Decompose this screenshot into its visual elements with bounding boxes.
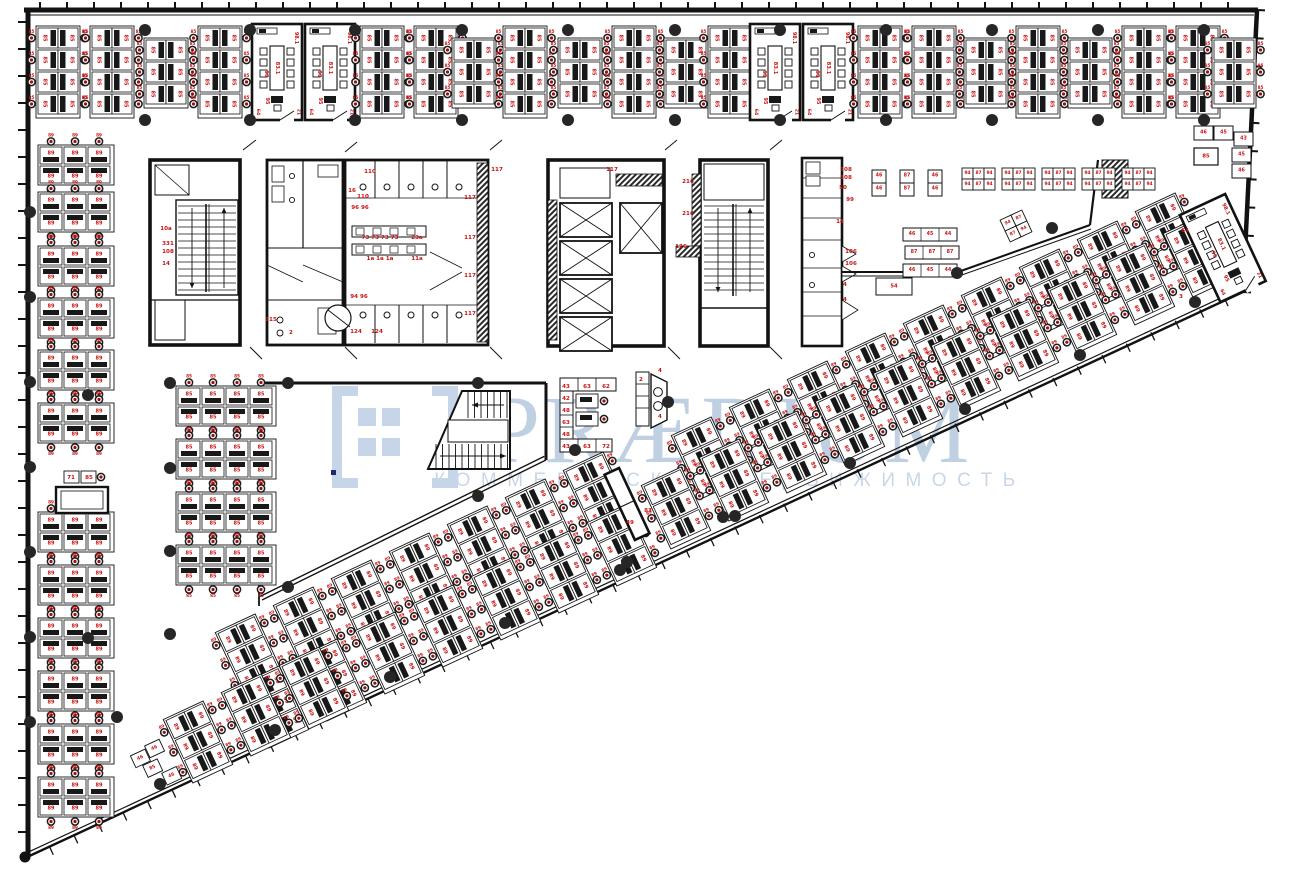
- svg-text:85: 85: [645, 101, 651, 108]
- svg-text:89: 89: [96, 379, 103, 385]
- column-dot: [164, 545, 176, 557]
- svg-text:89: 89: [72, 180, 78, 185]
- svg-text:85: 85: [85, 475, 93, 481]
- svg-text:85: 85: [591, 47, 597, 54]
- svg-text:85: 85: [96, 35, 102, 42]
- svg-text:85: 85: [1182, 35, 1188, 42]
- svg-text:85: 85: [1049, 101, 1055, 108]
- svg-text:64: 64: [308, 109, 314, 115]
- column-dot: [282, 377, 294, 389]
- svg-text:46: 46: [1238, 168, 1245, 174]
- svg-text:89: 89: [48, 606, 54, 611]
- svg-text:85: 85: [957, 85, 963, 90]
- svg-text:85: 85: [957, 63, 963, 68]
- svg-text:85: 85: [1128, 79, 1134, 86]
- svg-text:85: 85: [244, 95, 250, 100]
- svg-text:94: 94: [1106, 170, 1112, 176]
- svg-text:95: 95: [815, 98, 821, 105]
- svg-text:89: 89: [48, 133, 54, 138]
- column-dot: [1198, 114, 1210, 126]
- column-dot: [1074, 349, 1086, 361]
- svg-text:85: 85: [1155, 35, 1161, 42]
- column-dot: [880, 114, 892, 126]
- svg-text:89: 89: [48, 594, 55, 600]
- column-dot: [1092, 24, 1104, 36]
- svg-text:85: 85: [186, 445, 193, 451]
- desk-cluster: 858585858585858585858585: [956, 38, 1016, 108]
- svg-text:85: 85: [42, 35, 48, 42]
- desk-cluster: 85858585858585858585858585858585: [850, 26, 910, 118]
- svg-text:85: 85: [591, 91, 597, 98]
- svg-text:85: 85: [945, 101, 951, 108]
- svg-text:85: 85: [210, 392, 217, 398]
- desk-cluster: 858585858585858585858585: [550, 38, 610, 108]
- svg-text:85: 85: [366, 57, 372, 64]
- svg-text:89: 89: [72, 765, 78, 770]
- svg-text:85: 85: [618, 79, 624, 86]
- column-dot: [669, 24, 681, 36]
- svg-text:94: 94: [1146, 181, 1152, 187]
- column-dot: [562, 114, 574, 126]
- svg-text:85: 85: [905, 95, 911, 100]
- svg-text:85: 85: [1022, 101, 1028, 108]
- svg-text:89: 89: [72, 553, 78, 558]
- svg-text:64: 64: [1181, 228, 1189, 234]
- desk-cluster: 858585858585858585858585: [656, 38, 716, 108]
- svg-text:85: 85: [186, 551, 193, 557]
- svg-text:85: 85: [496, 51, 502, 56]
- svg-text:85: 85: [177, 69, 183, 76]
- svg-text:85: 85: [1049, 35, 1055, 42]
- svg-text:85: 85: [509, 57, 515, 64]
- column-dot: [139, 114, 151, 126]
- svg-text:89: 89: [72, 571, 79, 577]
- svg-text:106: 106: [845, 261, 857, 267]
- svg-text:94: 94: [1044, 170, 1050, 176]
- svg-text:89: 89: [72, 606, 78, 611]
- svg-text:43: 43: [562, 384, 570, 390]
- svg-text:85: 85: [509, 101, 515, 108]
- svg-text:89: 89: [48, 806, 55, 812]
- column-dot: [139, 24, 151, 36]
- svg-text:108: 108: [840, 167, 852, 173]
- svg-text:85: 85: [258, 427, 264, 432]
- svg-text:94: 94: [986, 170, 992, 176]
- column-dot: [24, 376, 36, 388]
- column-dot: [154, 778, 166, 790]
- svg-text:98.1: 98.1: [293, 32, 299, 45]
- column-dot: [349, 24, 361, 36]
- svg-text:99: 99: [761, 71, 767, 78]
- svg-text:85: 85: [997, 69, 1003, 76]
- svg-text:89: 89: [48, 234, 54, 239]
- svg-text:87: 87: [947, 249, 954, 255]
- svg-text:85: 85: [714, 35, 720, 42]
- svg-text:85: 85: [1115, 51, 1121, 56]
- svg-text:85: 85: [210, 574, 217, 580]
- svg-text:85: 85: [393, 57, 399, 64]
- svg-text:85: 85: [714, 79, 720, 86]
- svg-text:85: 85: [905, 29, 911, 34]
- svg-text:89: 89: [48, 409, 55, 415]
- svg-text:85: 85: [210, 468, 217, 474]
- svg-text:96 96: 96 96: [351, 205, 369, 211]
- column-dot: [269, 724, 281, 736]
- svg-text:89: 89: [48, 252, 55, 258]
- svg-text:85: 85: [407, 51, 413, 56]
- svg-text:85: 85: [29, 51, 35, 56]
- svg-text:85: 85: [123, 35, 129, 42]
- svg-text:94: 94: [1106, 181, 1112, 187]
- svg-text:85: 85: [69, 35, 75, 42]
- svg-text:89: 89: [96, 198, 103, 204]
- svg-text:85: 85: [258, 480, 264, 485]
- svg-text:85: 85: [234, 498, 241, 504]
- svg-text:85: 85: [891, 79, 897, 86]
- column-dot: [621, 556, 633, 568]
- svg-text:85: 85: [231, 79, 237, 86]
- svg-text:89: 89: [72, 252, 79, 258]
- svg-text:85: 85: [42, 57, 48, 64]
- svg-text:85: 85: [204, 57, 210, 64]
- svg-text:89: 89: [48, 624, 55, 630]
- svg-text:94: 94: [1124, 170, 1130, 176]
- svg-text:85: 85: [945, 79, 951, 86]
- svg-text:85: 85: [1169, 95, 1175, 100]
- svg-text:89: 89: [72, 659, 78, 664]
- svg-text:85: 85: [96, 101, 102, 108]
- svg-text:85: 85: [186, 574, 193, 580]
- svg-text:85: 85: [407, 73, 413, 78]
- column-dot: [24, 546, 36, 558]
- svg-text:21: 21: [847, 109, 853, 115]
- svg-text:85: 85: [366, 101, 372, 108]
- svg-text:89: 89: [96, 275, 103, 281]
- svg-text:85: 85: [1061, 63, 1067, 68]
- svg-text:85: 85: [1218, 47, 1224, 54]
- svg-text:85: 85: [393, 35, 399, 42]
- svg-text:85: 85: [137, 41, 143, 46]
- svg-text:110: 110: [357, 194, 369, 200]
- column-dot: [1189, 296, 1201, 308]
- desk-cluster: 85858585858585858585858585858585: [176, 533, 276, 598]
- svg-text:14: 14: [162, 261, 170, 267]
- svg-text:89: 89: [96, 700, 103, 706]
- svg-text:85: 85: [234, 415, 241, 421]
- svg-text:87: 87: [1095, 181, 1101, 187]
- svg-text:95: 95: [264, 98, 270, 105]
- svg-text:85: 85: [970, 47, 976, 54]
- column-dot: [1198, 24, 1210, 36]
- svg-text:85: 85: [1101, 47, 1107, 54]
- svg-text:85: 85: [1009, 73, 1015, 78]
- svg-text:85: 85: [605, 51, 611, 56]
- svg-text:89: 89: [48, 180, 54, 185]
- svg-text:85: 85: [1061, 41, 1067, 46]
- svg-text:23a: 23a: [411, 235, 423, 241]
- svg-text:89: 89: [72, 133, 78, 138]
- svg-text:106: 106: [845, 249, 857, 255]
- svg-text:94: 94: [1066, 181, 1072, 187]
- svg-text:85: 85: [210, 374, 216, 379]
- svg-text:89: 89: [96, 677, 103, 683]
- svg-text:85: 85: [1128, 57, 1134, 64]
- svg-text:85: 85: [1205, 85, 1211, 90]
- svg-text:89: 89: [72, 541, 79, 547]
- svg-text:89: 89: [48, 518, 55, 524]
- svg-text:85: 85: [393, 101, 399, 108]
- svg-text:85: 85: [564, 91, 570, 98]
- svg-text:85: 85: [123, 101, 129, 108]
- svg-text:85: 85: [1245, 47, 1251, 54]
- svg-text:44: 44: [945, 231, 952, 237]
- svg-text:85: 85: [210, 480, 216, 485]
- svg-text:87: 87: [1135, 170, 1141, 176]
- svg-text:89: 89: [96, 451, 102, 456]
- svg-text:89: 89: [72, 700, 79, 706]
- svg-text:85: 85: [701, 51, 707, 56]
- svg-text:117: 117: [464, 235, 476, 241]
- svg-text:89: 89: [48, 286, 54, 291]
- desk-cluster: 85858585858585858585858585858585: [82, 26, 142, 118]
- svg-text:85: 85: [670, 91, 676, 98]
- svg-text:85: 85: [701, 29, 707, 34]
- svg-text:85: 85: [1115, 29, 1121, 34]
- svg-text:94: 94: [1026, 170, 1032, 176]
- svg-text:2: 2: [289, 330, 293, 336]
- svg-text:85: 85: [234, 521, 241, 527]
- svg-text:85: 85: [1009, 95, 1015, 100]
- svg-text:83.1: 83.1: [327, 62, 333, 75]
- svg-text:85: 85: [29, 73, 35, 78]
- svg-text:89: 89: [96, 825, 102, 830]
- svg-text:63: 63: [583, 444, 591, 450]
- svg-text:87: 87: [1135, 181, 1141, 187]
- desk-cluster: 85858585858585858585858585858585: [495, 26, 555, 118]
- svg-text:89: 89: [48, 338, 54, 343]
- svg-text:85: 85: [657, 63, 663, 68]
- svg-text:94: 94: [1004, 170, 1010, 176]
- svg-text:10a: 10a: [160, 226, 172, 232]
- svg-text:89: 89: [96, 327, 103, 333]
- column-dot: [569, 444, 581, 456]
- svg-text:85: 85: [83, 95, 89, 100]
- svg-text:85: 85: [536, 79, 542, 86]
- svg-text:117: 117: [491, 167, 503, 173]
- svg-text:85: 85: [234, 445, 241, 451]
- svg-text:85: 85: [258, 574, 265, 580]
- svg-text:89: 89: [72, 275, 79, 281]
- svg-text:89: 89: [48, 753, 55, 759]
- svg-text:50: 50: [839, 185, 847, 191]
- svg-text:85: 85: [657, 85, 663, 90]
- column-dot: [959, 403, 971, 415]
- svg-text:85: 85: [970, 69, 976, 76]
- svg-text:95: 95: [317, 98, 323, 105]
- svg-text:85: 85: [234, 551, 241, 557]
- svg-text:85: 85: [420, 57, 426, 64]
- svg-text:63: 63: [562, 420, 570, 426]
- svg-text:87: 87: [1015, 181, 1021, 187]
- svg-text:85: 85: [1128, 101, 1134, 108]
- svg-text:89: 89: [96, 252, 103, 258]
- svg-text:98.1: 98.1: [844, 32, 850, 45]
- svg-text:85: 85: [701, 73, 707, 78]
- column-dot: [472, 377, 484, 389]
- svg-text:85: 85: [618, 35, 624, 42]
- column-dot: [282, 581, 294, 593]
- svg-text:71: 71: [67, 475, 75, 481]
- svg-text:85: 85: [96, 79, 102, 86]
- column-dot: [951, 267, 963, 279]
- svg-text:48: 48: [562, 432, 570, 438]
- column-dot: [82, 389, 94, 401]
- svg-text:85: 85: [741, 57, 747, 64]
- column-dot: [499, 617, 511, 629]
- svg-text:85: 85: [258, 551, 265, 557]
- svg-text:89: 89: [96, 174, 103, 180]
- svg-text:117: 117: [464, 311, 476, 317]
- svg-text:64: 64: [753, 109, 759, 115]
- svg-text:89: 89: [48, 825, 54, 830]
- svg-text:85: 85: [485, 47, 491, 54]
- svg-text:85: 85: [645, 57, 651, 64]
- pantry-counter: 464543454685: [1194, 126, 1253, 178]
- floor-plan-canvas: PRÆDIUM КОММЕРЧЕСКАЯ НЕДВИЖИМОСТЬ 858585…: [0, 0, 1309, 876]
- svg-text:72: 72: [602, 444, 610, 450]
- svg-text:94: 94: [1004, 181, 1010, 187]
- svg-text:85: 85: [701, 95, 707, 100]
- column-dot: [24, 206, 36, 218]
- column-dot: [717, 511, 729, 523]
- column-dot: [472, 490, 484, 502]
- svg-text:85: 85: [458, 69, 464, 76]
- svg-text:85: 85: [123, 79, 129, 86]
- stair-core-b: [676, 160, 768, 346]
- svg-text:21: 21: [296, 109, 302, 115]
- svg-text:85: 85: [670, 47, 676, 54]
- svg-text:89: 89: [48, 553, 54, 558]
- svg-text:89: 89: [48, 677, 55, 683]
- svg-text:89: 89: [72, 338, 78, 343]
- tilted-tables: 94878794: [1000, 210, 1032, 242]
- svg-text:89: 89: [48, 700, 55, 706]
- svg-text:85: 85: [945, 35, 951, 42]
- svg-text:85: 85: [1061, 85, 1067, 90]
- desk-cluster: 85858585858585858585858585858585: [190, 26, 250, 118]
- svg-text:85: 85: [231, 101, 237, 108]
- svg-text:85: 85: [353, 51, 359, 56]
- column-dot: [729, 510, 741, 522]
- svg-text:85: 85: [258, 593, 264, 598]
- svg-text:85: 85: [445, 85, 451, 90]
- svg-text:85: 85: [458, 47, 464, 54]
- svg-text:85: 85: [1049, 57, 1055, 64]
- svg-text:85: 85: [366, 35, 372, 42]
- svg-text:49: 49: [626, 520, 634, 526]
- svg-text:85: 85: [96, 57, 102, 64]
- svg-text:85: 85: [366, 79, 372, 86]
- svg-text:85: 85: [186, 392, 193, 398]
- svg-text:85: 85: [605, 95, 611, 100]
- column-dot: [669, 114, 681, 126]
- svg-text:64: 64: [806, 109, 812, 115]
- svg-text:83.1: 83.1: [772, 62, 778, 75]
- svg-text:45: 45: [1220, 130, 1227, 136]
- svg-text:85: 85: [714, 101, 720, 108]
- svg-text:89: 89: [96, 338, 102, 343]
- svg-text:4: 4: [843, 282, 847, 288]
- desk-cluster: 85858585858585858585858585858585: [28, 26, 88, 118]
- svg-text:85: 85: [1169, 51, 1175, 56]
- svg-text:85: 85: [618, 101, 624, 108]
- column-dot: [82, 632, 94, 644]
- svg-text:85: 85: [1169, 73, 1175, 78]
- svg-text:87: 87: [975, 170, 981, 176]
- svg-text:85: 85: [564, 47, 570, 54]
- svg-text:85: 85: [191, 51, 197, 56]
- svg-text:85: 85: [891, 35, 897, 42]
- column-dot: [562, 24, 574, 36]
- svg-text:85: 85: [210, 593, 216, 598]
- svg-text:89: 89: [48, 571, 55, 577]
- svg-text:89: 89: [72, 174, 79, 180]
- svg-text:89: 89: [72, 825, 78, 830]
- svg-text:85: 85: [42, 101, 48, 108]
- svg-text:117: 117: [606, 167, 618, 173]
- column-dot: [24, 716, 36, 728]
- column-dot: [384, 671, 396, 683]
- column-dot: [24, 631, 36, 643]
- svg-text:85: 85: [549, 29, 555, 34]
- svg-text:85: 85: [186, 480, 192, 485]
- svg-text:46: 46: [932, 173, 939, 179]
- svg-text:85: 85: [234, 392, 241, 398]
- meeting-room: 98.183.199956421: [750, 24, 800, 123]
- svg-text:46: 46: [1200, 130, 1207, 136]
- svg-text:89: 89: [72, 730, 79, 736]
- svg-text:85: 85: [234, 574, 241, 580]
- svg-text:85: 85: [191, 73, 197, 78]
- svg-text:85: 85: [186, 498, 193, 504]
- svg-text:16: 16: [348, 188, 356, 194]
- svg-text:42: 42: [562, 396, 570, 402]
- svg-text:115: 115: [265, 317, 277, 323]
- svg-text:85: 85: [485, 91, 491, 98]
- desk-cluster: 85858585858585858585858585858585: [604, 26, 664, 118]
- svg-text:89: 89: [96, 356, 103, 362]
- column-dot: [456, 114, 468, 126]
- svg-text:85: 85: [1022, 79, 1028, 86]
- svg-text:89: 89: [96, 286, 102, 291]
- svg-text:85: 85: [210, 551, 217, 557]
- svg-text:85: 85: [891, 57, 897, 64]
- svg-text:85: 85: [244, 51, 250, 56]
- svg-text:64: 64: [255, 109, 261, 115]
- svg-text:85: 85: [918, 57, 924, 64]
- svg-text:85: 85: [445, 63, 451, 68]
- svg-text:89: 89: [96, 180, 102, 185]
- svg-text:85: 85: [420, 35, 426, 42]
- svg-text:89: 89: [48, 151, 55, 157]
- desk-cluster: 85858585858585858585858585858585: [352, 26, 412, 118]
- svg-text:124: 124: [350, 329, 362, 335]
- column-dot: [1092, 114, 1104, 126]
- svg-text:85: 85: [741, 79, 747, 86]
- elevator-bank: [548, 160, 664, 351]
- svg-text:89: 89: [96, 221, 103, 227]
- svg-text:89: 89: [48, 356, 55, 362]
